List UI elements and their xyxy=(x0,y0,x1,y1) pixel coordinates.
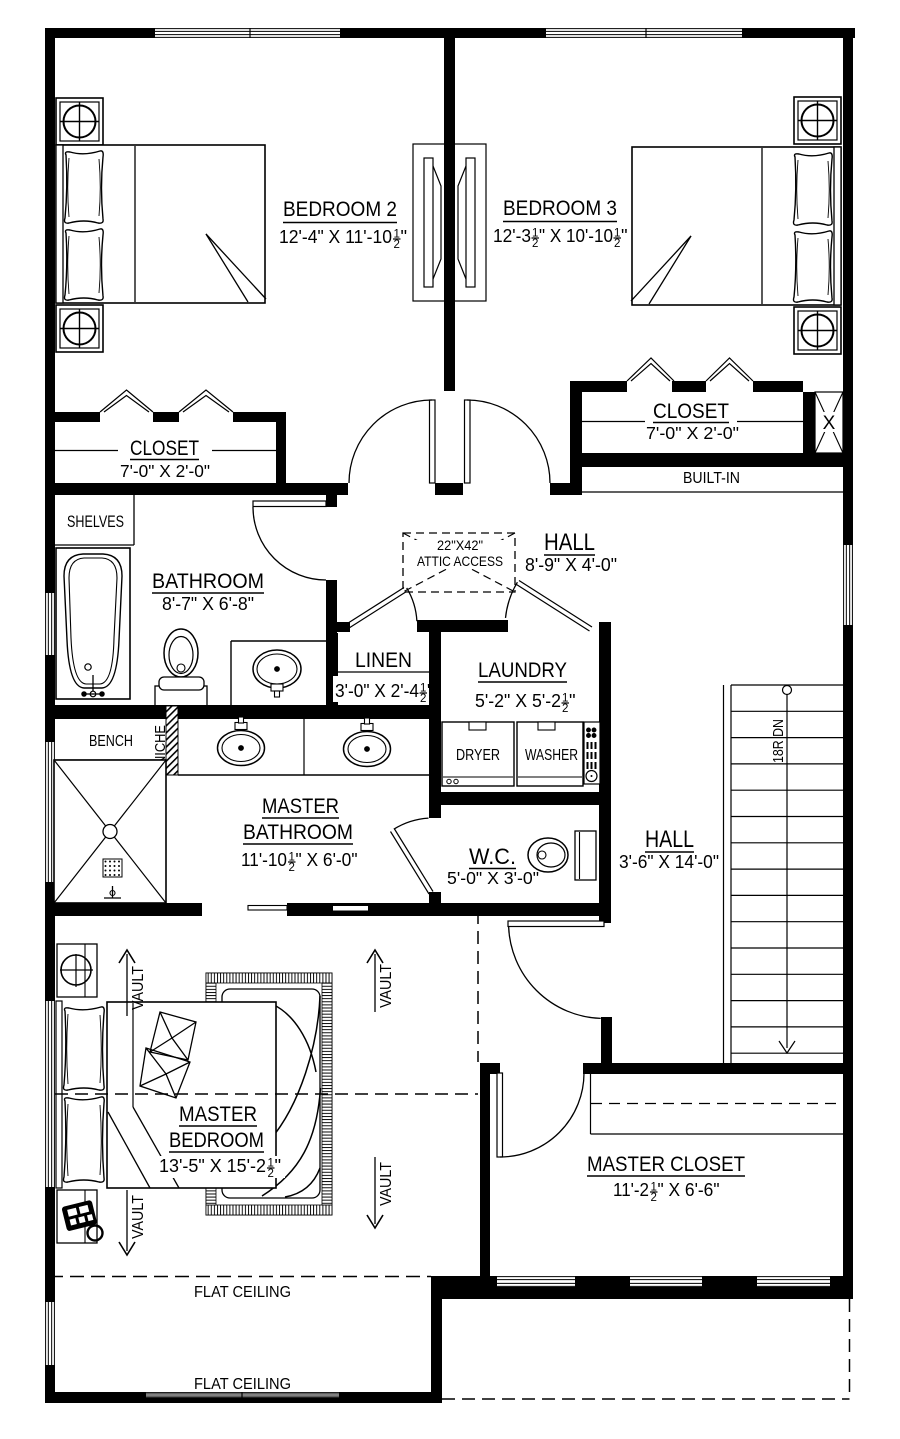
svg-text:X: X xyxy=(823,413,836,434)
svg-text:FLAT CEILING: FLAT CEILING xyxy=(194,1284,291,1301)
svg-text:FLAT CEILING: FLAT CEILING xyxy=(194,1376,291,1393)
svg-text:12'-3: 12'-3 xyxy=(493,225,531,246)
svg-text:W.C.: W.C. xyxy=(469,844,516,869)
svg-text:2: 2 xyxy=(267,1168,273,1180)
svg-text:3'-0" X 2'-4: 3'-0" X 2'-4 xyxy=(335,680,419,701)
svg-text:MASTER CLOSET: MASTER CLOSET xyxy=(587,1152,745,1176)
svg-text:5'-0" X 3'-0": 5'-0" X 3'-0" xyxy=(447,868,539,888)
svg-text:ATTIC ACCESS: ATTIC ACCESS xyxy=(417,553,503,569)
svg-text:2: 2 xyxy=(650,1192,656,1204)
svg-text:7'-0" X 2'-0": 7'-0" X 2'-0" xyxy=(120,461,210,481)
svg-text:": " xyxy=(569,690,576,711)
svg-text:CLOSET: CLOSET xyxy=(130,437,199,460)
svg-text:LINEN: LINEN xyxy=(355,649,412,672)
svg-text:MASTER: MASTER xyxy=(262,795,339,818)
svg-text:": " xyxy=(275,1155,282,1176)
svg-text:8'-7" X 6'-8": 8'-7" X 6'-8" xyxy=(162,593,254,614)
svg-text:CLOSET: CLOSET xyxy=(653,400,729,423)
svg-text:2: 2 xyxy=(532,238,538,250)
svg-text:": " xyxy=(621,225,628,246)
svg-text:5'-2" X 5'-2: 5'-2" X 5'-2 xyxy=(475,690,561,711)
svg-text:" X 6'-6": " X 6'-6" xyxy=(658,1179,720,1200)
svg-text:BEDROOM 2: BEDROOM 2 xyxy=(283,198,397,221)
svg-text:" X 6'-0": " X 6'-0" xyxy=(296,849,358,870)
svg-text:12'-4" X 11'-10: 12'-4" X 11'-10 xyxy=(279,226,392,247)
svg-text:MASTER: MASTER xyxy=(179,1102,257,1126)
svg-text:11'-10: 11'-10 xyxy=(241,849,287,870)
svg-text:2: 2 xyxy=(614,238,620,250)
svg-text:BEDROOM: BEDROOM xyxy=(169,1128,264,1152)
svg-text:" X 10'-10: " X 10'-10 xyxy=(539,225,613,246)
svg-text:22"X42": 22"X42" xyxy=(437,537,483,553)
svg-text:SHELVES: SHELVES xyxy=(67,512,124,531)
svg-text:DRYER: DRYER xyxy=(456,747,500,764)
svg-text:BATHROOM: BATHROOM xyxy=(152,570,264,593)
svg-text:13'-5" X 15'-2: 13'-5" X 15'-2 xyxy=(159,1155,266,1176)
svg-text:VAULT: VAULT xyxy=(378,1162,395,1206)
svg-text:VAULT: VAULT xyxy=(130,966,147,1010)
svg-text:LAUNDRY: LAUNDRY xyxy=(478,659,567,682)
svg-text:18R DN: 18R DN xyxy=(770,719,787,763)
svg-text:VAULT: VAULT xyxy=(378,964,395,1008)
svg-text:BUILT-IN: BUILT-IN xyxy=(683,470,740,487)
svg-text:8'-9" X 4'-0": 8'-9" X 4'-0" xyxy=(525,554,617,575)
svg-text:11'-2: 11'-2 xyxy=(613,1179,649,1200)
svg-text:HALL: HALL xyxy=(645,826,694,853)
svg-text:2: 2 xyxy=(420,693,426,705)
svg-text:2: 2 xyxy=(393,239,399,251)
svg-text:VAULT: VAULT xyxy=(130,1195,147,1239)
svg-text:": " xyxy=(401,226,408,247)
svg-text:7'-0" X 2'-0": 7'-0" X 2'-0" xyxy=(646,423,739,443)
svg-text:2: 2 xyxy=(562,703,568,715)
svg-text:BEDROOM 3: BEDROOM 3 xyxy=(503,197,617,220)
svg-text:2: 2 xyxy=(288,862,294,874)
svg-text:3'-6" X 14'-0": 3'-6" X 14'-0" xyxy=(619,851,719,872)
svg-text:WASHER: WASHER xyxy=(525,747,578,764)
svg-text:NICHE: NICHE xyxy=(152,725,169,765)
svg-text:HALL: HALL xyxy=(544,529,595,556)
svg-text:BATHROOM: BATHROOM xyxy=(243,821,353,844)
svg-text:BENCH: BENCH xyxy=(89,733,133,750)
